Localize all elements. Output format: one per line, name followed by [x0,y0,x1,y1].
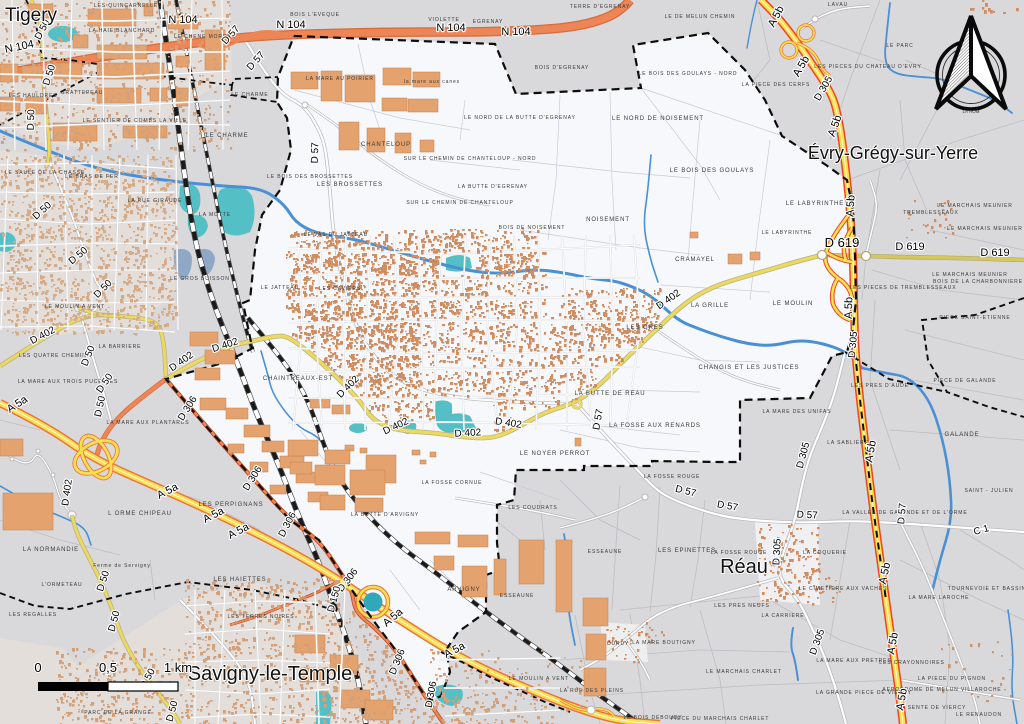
svg-text:LES COUDRATS: LES COUDRATS [508,505,557,511]
svg-text:LA NORMANDIE: LA NORMANDIE [23,547,79,553]
svg-text:0,5: 0,5 [99,660,117,675]
svg-text:LA MOTTE: LA MOTTE [199,212,231,218]
svg-text:LA MARE BOUTIGNY: LA MARE BOUTIGNY [632,640,696,646]
svg-text:LE GROS BUISSON: LE GROS BUISSON [170,276,230,282]
svg-text:LE BOIS DES GOULAYS - NORD: LE BOIS DES GOULAYS - NORD [639,71,738,77]
svg-text:LA BUTTE D'EGRENAY: LA BUTTE D'EGRENAY [458,184,528,190]
svg-text:LA SENTE DE VIERCY: LA SENTE DE VIERCY [898,705,966,711]
svg-text:N 104: N 104 [501,26,530,38]
svg-text:LA COQUERIE: LA COQUERIE [803,550,847,556]
svg-text:LA FOSSE ROUGE: LA FOSSE ROUGE [644,474,701,480]
svg-text:BOIS L'EVEQUE: BOIS L'EVEQUE [290,12,340,18]
svg-text:ESSEAUNE: ESSEAUNE [588,549,622,555]
svg-text:PIECE DU MARCHAIS CHARLET: PIECE DU MARCHAIS CHARLET [671,716,770,722]
svg-text:SAINT - JULIEN: SAINT - JULIEN [965,488,1014,494]
svg-text:BOIS D'EGRENAY: BOIS D'EGRENAY [535,65,590,71]
svg-text:D 619: D 619 [980,247,1009,259]
svg-text:N 104: N 104 [436,22,465,34]
svg-text:LA BUTTE D'ARVIGNY: LA BUTTE D'ARVIGNY [351,512,419,518]
svg-text:LE LABYRINTHE: LE LABYRINTHE [762,230,813,236]
svg-text:LA MARE DES UNIFAS: LA MARE DES UNIFAS [763,409,832,415]
svg-text:D 619: D 619 [895,241,924,253]
svg-text:LES PRES D'AUDE: LES PRES D'AUDE [851,383,909,389]
svg-text:LE NORD DE NOISEMENT: LE NORD DE NOISEMENT [612,116,704,122]
svg-text:CHAINTREAUX-EST: CHAINTREAUX-EST [263,376,333,382]
svg-text:LE CHARME: LE CHARME [231,92,268,98]
svg-text:SUR LE CHEMIN DE CHANTELOUP -: SUR LE CHEMIN DE CHANTELOUP - NORD [404,156,537,162]
svg-text:LES CAVIERS: LES CAVIERS [319,286,361,292]
svg-text:N 104: N 104 [168,14,197,26]
svg-text:GALANDE: GALANDE [945,432,980,438]
svg-text:SUR LE CHEMIN DE CHANTELOUP: SUR LE CHEMIN DE CHANTELOUP [406,200,513,206]
svg-text:CHANTELOUP: CHANTELOUP [361,142,411,148]
svg-text:LE MOULIN A VENT: LE MOULIN A VENT [45,304,105,310]
svg-text:TOURNEVOIE ET BASSIN: TOURNEVOIE ET BASSIN [948,586,1024,592]
svg-text:LE MOULIN A VENT: LE MOULIN A VENT [509,676,569,682]
svg-text:LE NOYER PERROT: LE NOYER PERROT [520,451,591,457]
svg-text:LA PIECE DU PIGNON: LA PIECE DU PIGNON [918,676,986,682]
svg-text:LES QUINCARNELLES: LES QUINCARNELLES [94,3,162,9]
svg-text:LES TERRES NOIRES: LES TERRES NOIRES [228,614,295,620]
svg-text:Évry-Grégy-sur-Yerre: Évry-Grégy-sur-Yerre [808,143,978,163]
svg-text:Savigny-le-Temple: Savigny-le-Temple [188,663,353,685]
svg-text:LE MARCHAIS MEUNIER: LE MARCHAIS MEUNIER [947,226,1022,232]
svg-text:0: 0 [34,660,41,675]
svg-text:LA MARE LAROCHE: LA MARE LAROCHE [909,595,970,601]
svg-text:D 57: D 57 [310,142,322,164]
svg-text:OURDY: OURDY [607,641,630,647]
svg-text:LE LABYRINTHE: LE LABYRINTHE [786,201,844,207]
svg-text:ARVIGNY: ARVIGNY [447,587,480,593]
svg-text:LAVAU: LAVAU [828,2,848,8]
svg-text:LA PIECE DES CERFS: LA PIECE DES CERFS [742,82,810,88]
svg-text:GRATTEPEAU: GRATTEPEAU [61,90,104,96]
svg-text:LA FOSSE AUX RENARDS: LA FOSSE AUX RENARDS [609,423,701,429]
svg-text:LE SENTIER DE COMBS LA VILLE: LE SENTIER DE COMBS LA VILLE [83,118,188,124]
svg-text:NOISEMENT: NOISEMENT [586,217,630,223]
svg-text:Ferme de Servigny: Ferme de Servigny [93,563,151,569]
svg-text:LES EPINETTES: LES EPINETTES [658,548,716,554]
svg-text:PIECE DE GALANDE: PIECE DE GALANDE [933,378,996,384]
svg-text:Tigery: Tigery [5,5,58,26]
svg-text:LE MARCHAIS CHARLET: LE MARCHAIS CHARLET [706,669,782,675]
svg-text:LE CHARME: LE CHARME [205,133,248,139]
svg-text:LA MARE AUX PLANTARDS: LA MARE AUX PLANTARDS [107,420,190,426]
svg-text:LE BOIS DES GOULAYS: LE BOIS DES GOULAYS [670,168,755,174]
svg-text:D 57: D 57 [896,502,909,524]
svg-text:LE PARC: LE PARC [886,43,913,49]
svg-text:LE MARCHAIS MEUNIER: LE MARCHAIS MEUNIER [932,272,1007,278]
svg-text:Réau: Réau [720,556,768,578]
svg-text:LA MARE AU POIRIER: LA MARE AU POIRIER [306,76,374,82]
svg-text:LES HAULDRES: LES HAULDRES [9,93,58,99]
svg-text:LE RENAUDON: LE RENAUDON [956,712,1002,718]
svg-text:D 305: D 305 [847,331,860,359]
svg-text:TREMBLESSEAUX: TREMBLESSEAUX [903,210,959,216]
svg-text:LE BRAS DE FER: LE BRAS DE FER [65,174,118,180]
svg-text:LES PRES NEUFS: LES PRES NEUFS [714,603,769,609]
svg-text:LA CARRIERE: LA CARRIERE [762,613,805,619]
svg-text:PARC DE LA GRANGE: PARC DE LA GRANGE [84,710,151,716]
svg-text:LE MARCHAIS MEUNIER: LE MARCHAIS MEUNIER [937,203,1012,209]
svg-text:L ORME CHIPEAU: L ORME CHIPEAU [108,511,172,517]
svg-text:ESSEAUNE: ESSEAUNE [500,593,534,599]
svg-text:LES CRAYONNOIRES: LES CRAYONNOIRES [879,660,944,666]
svg-text:LES HAIETTES: LES HAIETTES [213,577,266,583]
svg-text:LE VAS DU JATTEAU: LE VAS DU JATTEAU [304,232,368,238]
svg-text:LE DE MELUN CHEMIN: LE DE MELUN CHEMIN [665,14,736,20]
svg-text:1 km: 1 km [164,660,192,675]
svg-text:LA HOM: LA HOM [962,109,979,114]
svg-text:L'ORMETEAU: L'ORMETEAU [41,582,82,588]
svg-text:LE BOIS DES BROSSETTES: LE BOIS DES BROSSETTES [267,174,353,180]
svg-text:LE MOULIN: LE MOULIN [773,301,813,307]
svg-text:LES REGALLES: LES REGALLES [9,612,57,618]
svg-text:BOIS DE NOISEMENT: BOIS DE NOISEMENT [499,225,566,231]
svg-text:D 305: D 305 [771,538,783,566]
svg-text:TERRE D'EGRENAY: TERRE D'EGRENAY [570,4,630,10]
svg-text:la mare aux canes: la mare aux canes [404,79,460,85]
svg-text:LES PIECES DE TREMBLESSEAUX: LES PIECES DE TREMBLESSEAUX [849,285,956,291]
svg-text:LA SABLIERE: LA SABLIERE [827,440,869,446]
svg-text:D 57: D 57 [796,509,818,521]
svg-text:LA RUE DES PLEINS: LA RUE DES PLEINS [560,688,624,694]
svg-text:LA GRILLE: LA GRILLE [691,303,729,309]
svg-text:LE NORD DE LA BUTTE D'EGRENAY: LE NORD DE LA BUTTE D'EGRENAY [464,115,576,121]
svg-text:D 402: D 402 [454,427,482,439]
svg-text:CHANGIS ET LES JUSTICES: CHANGIS ET LES JUSTICES [699,365,800,371]
svg-text:LES GRES: LES GRES [626,325,663,331]
svg-text:LE JATTEAU: LE JATTEAU [261,285,299,291]
svg-text:LA BUTTE DE REAU: LA BUTTE DE REAU [574,391,645,397]
svg-text:EGRENAY: EGRENAY [473,19,503,25]
svg-text:BOIS DE LA CHARBONNIERE: BOIS DE LA CHARBONNIERE [933,279,1023,285]
svg-text:LA RUE GIRAUDE: LA RUE GIRAUDE [128,198,183,204]
svg-text:CRAMAYEL: CRAMAYEL [675,257,715,263]
svg-text:D 619: D 619 [825,235,860,250]
svg-text:A 5b: A 5b [843,297,856,319]
svg-text:N 104: N 104 [276,19,305,31]
svg-text:LES BROSSETTES: LES BROSSETTES [317,182,383,188]
svg-text:D 50: D 50 [26,109,38,131]
svg-text:LA FOSSE CORNUE: LA FOSSE CORNUE [422,480,483,486]
svg-text:LE CIMETIERE AUX VACHES: LE CIMETIERE AUX VACHES [799,586,887,592]
svg-text:LA BARRIERE: LA BARRIERE [99,344,142,350]
svg-text:LES QUATRE CHEMINS: LES QUATRE CHEMINS [19,353,91,359]
svg-text:LES PERPIGNANS: LES PERPIGNANS [199,502,264,508]
svg-text:LES PIECES DU CHATEAU D'EVRY: LES PIECES DU CHATEAU D'EVRY [814,64,921,70]
svg-text:A 5b: A 5b [844,195,857,218]
svg-text:PIECE SAINT-ETIENNE: PIECE SAINT-ETIENNE [939,315,1010,321]
svg-text:LA HAIE BLANCHARD: LA HAIE BLANCHARD [89,28,155,34]
